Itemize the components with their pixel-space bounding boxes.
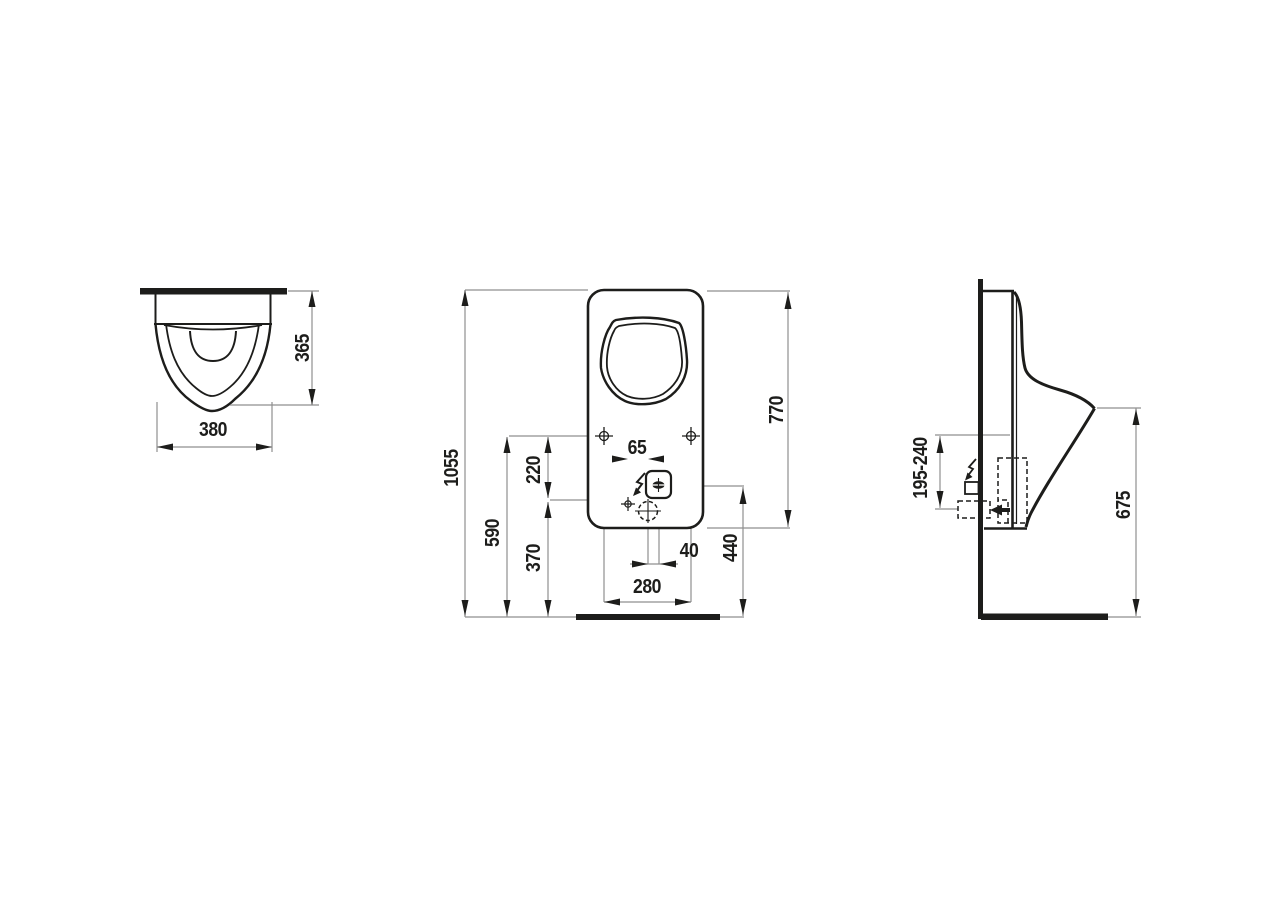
dimension-label-590: 590 bbox=[483, 519, 503, 547]
urinal-dimension-drawing: 365 380 1055 590 220 370 65 40 280 440 7… bbox=[0, 0, 1280, 900]
dimension-label-280: 280 bbox=[633, 577, 661, 597]
electrical-wall-box bbox=[965, 482, 979, 494]
dimension-label-365: 365 bbox=[293, 334, 313, 362]
dimension-label-1055: 1055 bbox=[442, 449, 462, 486]
dimension-label-65: 65 bbox=[628, 438, 647, 458]
wall-line bbox=[978, 279, 983, 619]
top-view bbox=[140, 288, 319, 452]
lightning-bolt-icon bbox=[965, 459, 976, 481]
floor-line bbox=[981, 614, 1108, 621]
side-view bbox=[935, 279, 1141, 620]
wall-section bbox=[140, 288, 287, 295]
dimension-label-40: 40 bbox=[680, 541, 699, 561]
side-view-dimension-lines bbox=[935, 408, 1141, 617]
urinal-profile-outline bbox=[1014, 292, 1095, 409]
front-view bbox=[462, 290, 792, 620]
side-view-arrows bbox=[937, 409, 1140, 615]
dimension-label-380: 380 bbox=[199, 420, 227, 440]
dimension-label-440: 440 bbox=[721, 534, 741, 562]
drain-dome bbox=[190, 331, 236, 361]
water-inlet-arrow-icon bbox=[990, 505, 1010, 516]
dimension-label-675: 675 bbox=[1114, 491, 1134, 519]
dimension-label-770: 770 bbox=[767, 396, 787, 424]
electrical-box bbox=[646, 471, 671, 498]
dimension-label-195-240: 195-240 bbox=[911, 437, 931, 499]
water-supply-dashed-box bbox=[958, 501, 990, 518]
floor-line bbox=[576, 614, 720, 620]
dimension-label-220: 220 bbox=[524, 456, 544, 484]
dimension-label-370: 370 bbox=[524, 544, 544, 572]
bowl-outline bbox=[156, 324, 271, 411]
